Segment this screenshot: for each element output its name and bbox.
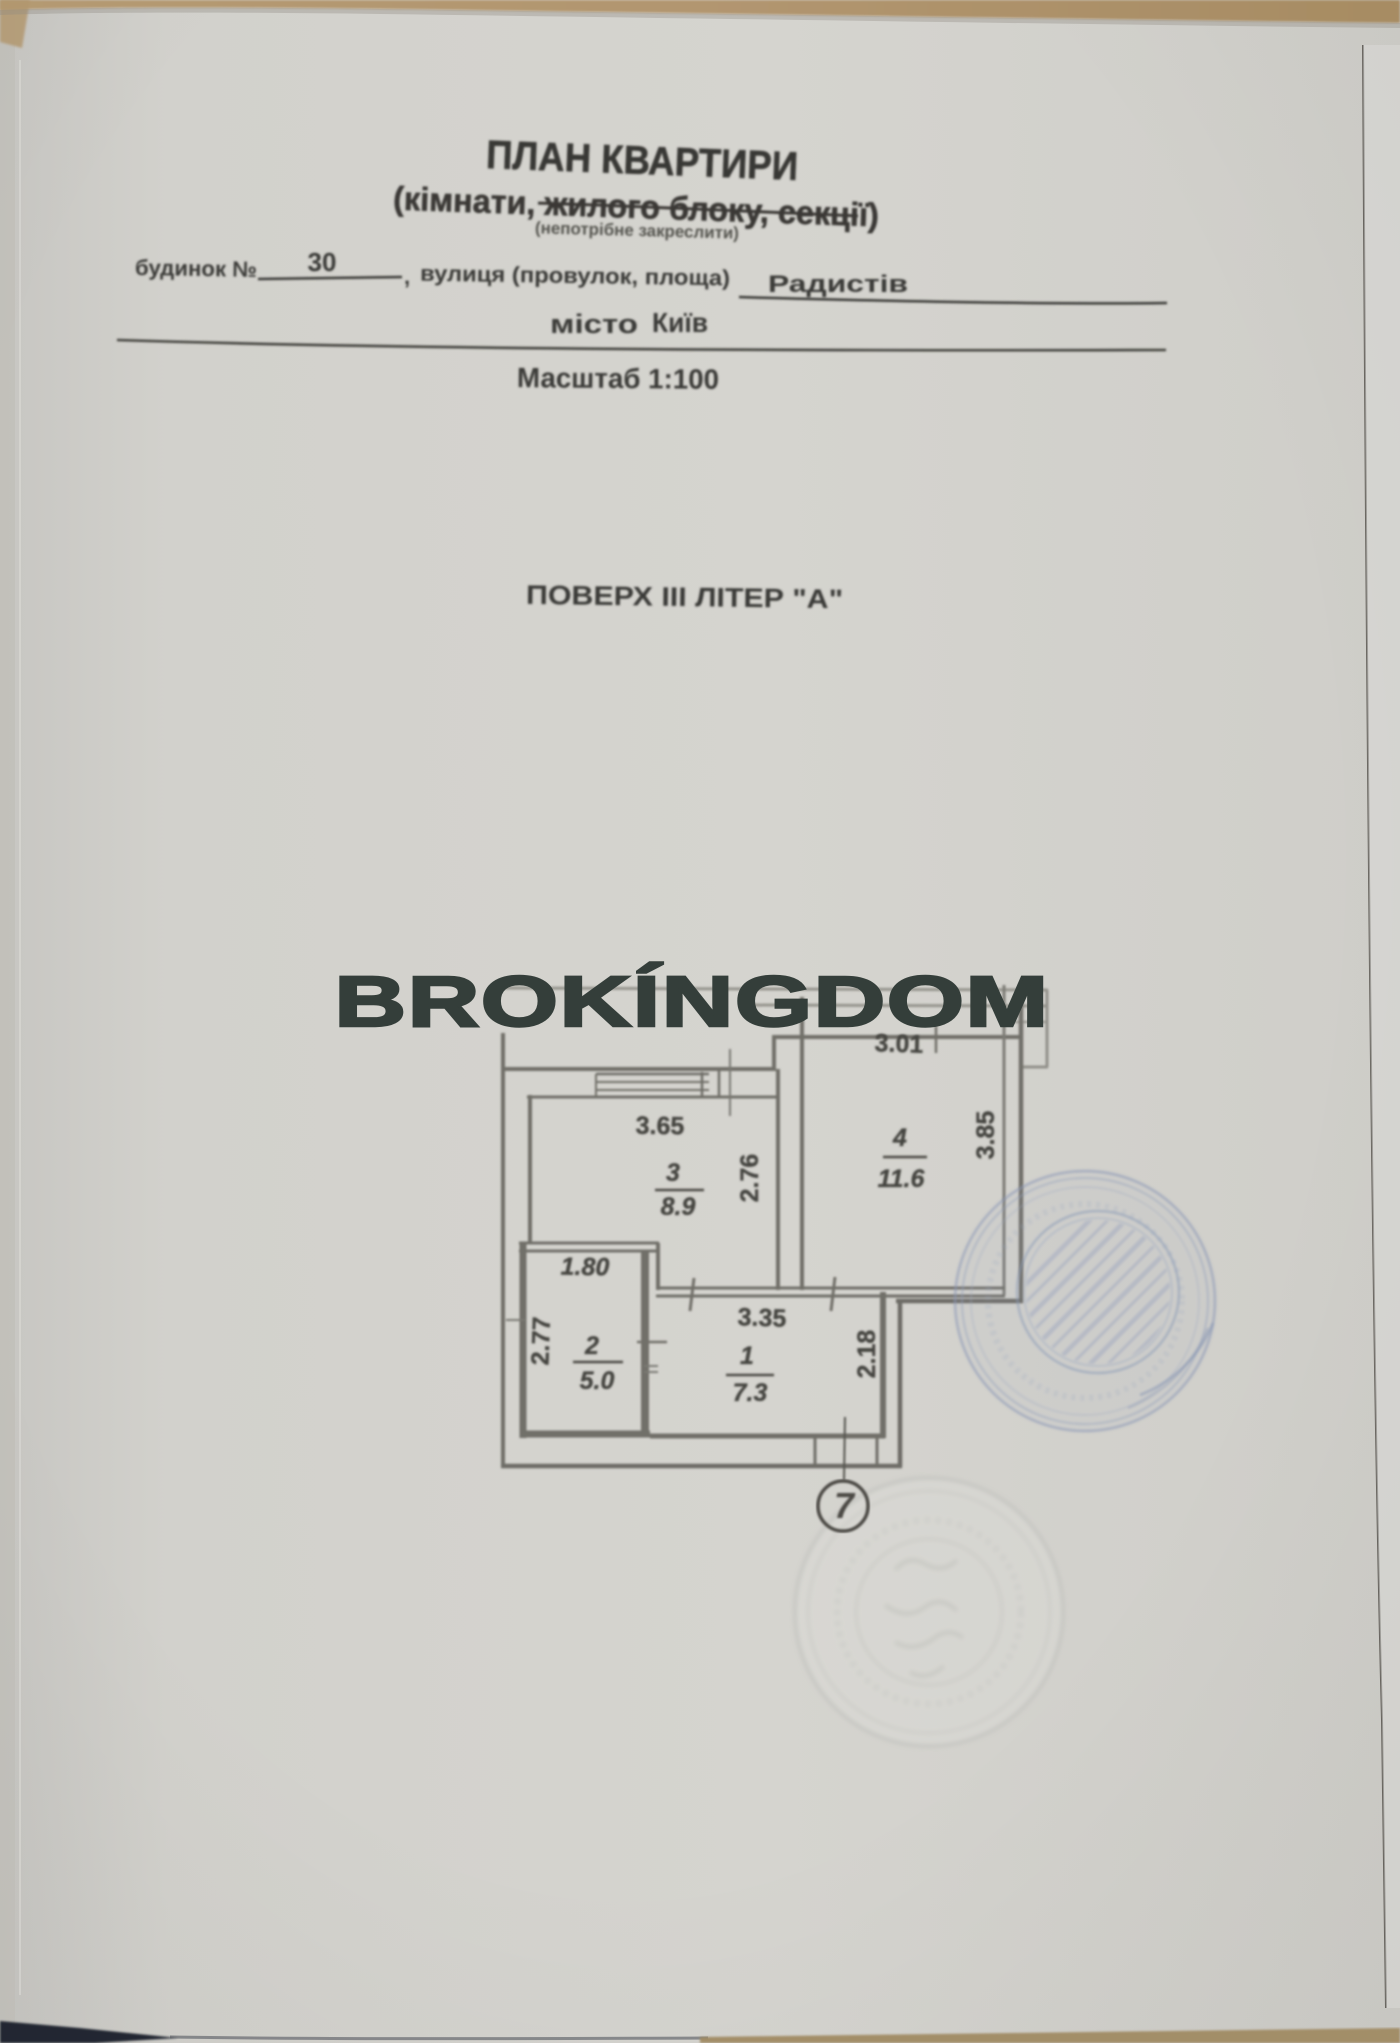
svg-text:4: 4 [892, 1124, 907, 1152]
svg-text:11.6: 11.6 [878, 1165, 926, 1193]
svg-text:7.3: 7.3 [733, 1379, 768, 1407]
svg-text:BROKÍNGDOM: BROKÍNGDOM [334, 962, 1049, 1042]
svg-text:вулиця (провулок, площа): вулиця (провулок, площа) [420, 261, 730, 291]
svg-text:30: 30 [308, 247, 337, 277]
svg-text:1.80: 1.80 [560, 1253, 609, 1282]
svg-text:Київ: Київ [652, 307, 708, 338]
svg-text:будинок №: будинок № [135, 255, 257, 282]
svg-text:3.65: 3.65 [635, 1112, 684, 1141]
svg-text:Радистів: Радистів [768, 271, 908, 298]
svg-text:ПОВЕРХ III ЛІТЕР "А": ПОВЕРХ III ЛІТЕР "А" [526, 580, 843, 614]
svg-text:місто: місто [550, 309, 638, 339]
svg-text:5.0: 5.0 [580, 1367, 615, 1395]
svg-text:3.35: 3.35 [737, 1303, 787, 1333]
svg-text:2.18: 2.18 [853, 1330, 881, 1379]
svg-text:2.77: 2.77 [526, 1316, 556, 1366]
svg-text:,: , [404, 264, 410, 289]
svg-text:1: 1 [740, 1342, 754, 1370]
svg-text:Масштаб 1:100: Масштаб 1:100 [517, 362, 719, 395]
svg-text:2.76: 2.76 [736, 1154, 764, 1203]
svg-text:2: 2 [584, 1332, 599, 1360]
svg-text:3.85: 3.85 [972, 1111, 1000, 1160]
svg-text:7: 7 [834, 1485, 856, 1526]
svg-text:8.9: 8.9 [661, 1193, 696, 1221]
svg-text:3: 3 [666, 1159, 680, 1187]
